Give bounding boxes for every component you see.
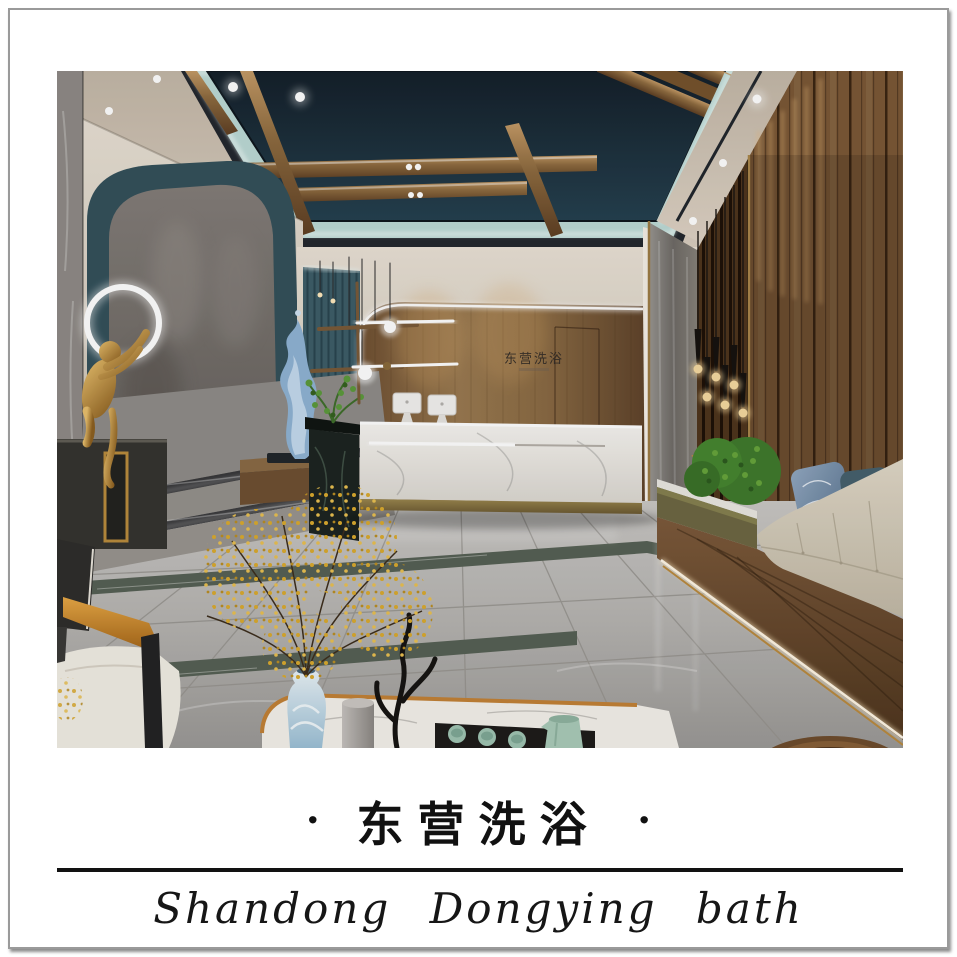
lobby-scene: 东营洗浴: [57, 71, 903, 748]
poster-title-row: · 东营洗浴 ·: [0, 788, 957, 852]
vignette: [57, 71, 903, 748]
poster-canvas: 东营洗浴: [0, 0, 957, 957]
divider-line: [57, 868, 903, 872]
lobby-photo: 东营洗浴: [57, 71, 903, 748]
poster-subtitle: Shandong Dongying bath: [0, 879, 957, 939]
title-dot-right: ·: [637, 788, 652, 852]
poster-title: 东营洗浴: [357, 786, 601, 855]
title-dot-left: ·: [305, 788, 320, 852]
